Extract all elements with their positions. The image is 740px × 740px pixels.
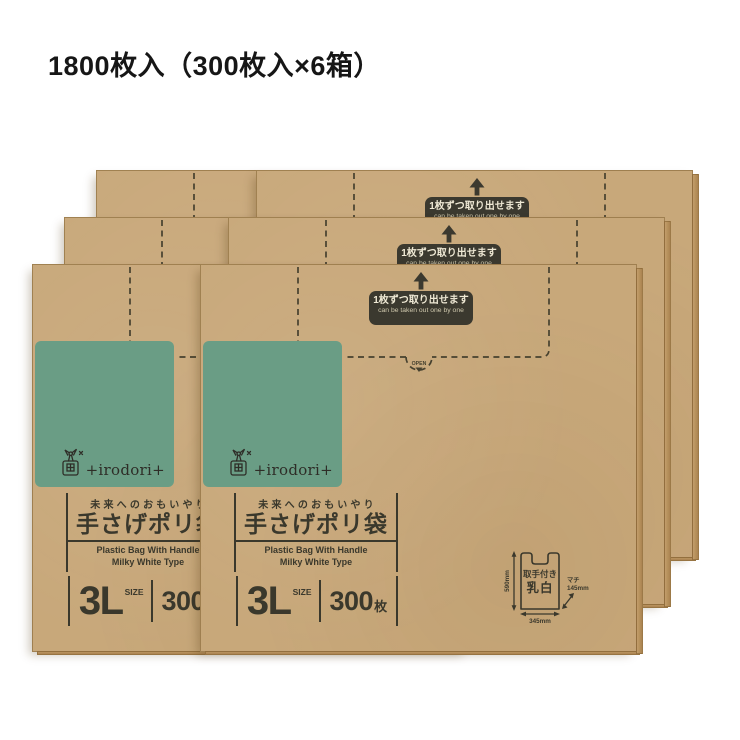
gusset-arrow — [565, 597, 572, 606]
open-label: OPEN — [412, 361, 427, 367]
size-count-block: 3L SIZE 300 枚 — [236, 576, 398, 626]
brand-logo-text: +irodori+ — [254, 463, 333, 478]
size-value: 3L — [247, 581, 291, 621]
brand-panel: +irodori+ — [35, 341, 174, 487]
divider — [319, 580, 321, 622]
product-tagline: 未来へのおもいやり — [236, 496, 396, 511]
product-title-block: 未来へのおもいやり 手さげポリ袋 Plastic Bag With Handle… — [234, 493, 398, 572]
size-unit-label: SIZE — [125, 587, 144, 597]
product-stack: OPEN 取手付き 乳白 — [0, 0, 740, 740]
dispenser-badge-jp: 1枚ずつ取り出せます — [369, 295, 473, 307]
sheet-unit: 枚 — [374, 596, 387, 615]
dispenser-badge-jp: 1枚ずつ取り出せます — [397, 248, 501, 260]
size-unit-label: SIZE — [293, 587, 312, 597]
bag-type-line1: 取手付き — [523, 569, 557, 579]
bag-type-line2: 乳白 — [526, 580, 553, 595]
dispense-arrow-icon — [470, 178, 485, 196]
sheet-count: 300 — [162, 588, 206, 615]
product-sub-en-1: Plastic Bag With Handle — [236, 545, 396, 557]
dispense-arrow-icon — [442, 225, 457, 243]
gusset-value: 145mm — [567, 585, 589, 592]
size-value: 3L — [79, 581, 123, 621]
tied-bag-icon — [227, 448, 253, 478]
product-name: 手さげポリ袋 — [236, 512, 396, 537]
product-sub-en-2: Milky White Type — [236, 557, 396, 569]
divider — [236, 540, 396, 542]
dispenser-badge-en: can be taken out one by one — [369, 308, 473, 315]
gusset-label: マチ — [567, 576, 580, 584]
brand-logo: +irodori+ — [59, 448, 165, 478]
dispense-arrow-icon — [414, 272, 429, 290]
bag-height-label: 590mm — [504, 570, 511, 592]
dispenser-badge: 1枚ずつ取り出せます can be taken out one by one — [369, 291, 473, 325]
tied-bag-icon — [59, 448, 85, 478]
brand-panel: +irodori+ — [203, 341, 342, 487]
brand-logo: +irodori+ — [227, 448, 333, 478]
divider — [151, 580, 153, 622]
sheet-count: 300 — [330, 588, 374, 615]
bag-width-label: 345mm — [529, 618, 551, 625]
brand-logo-text: +irodori+ — [86, 463, 165, 478]
box-front-right: OPEN 取手付き 乳白 — [200, 264, 637, 652]
dispenser-badge-jp: 1枚ずつ取り出せます — [425, 201, 529, 213]
